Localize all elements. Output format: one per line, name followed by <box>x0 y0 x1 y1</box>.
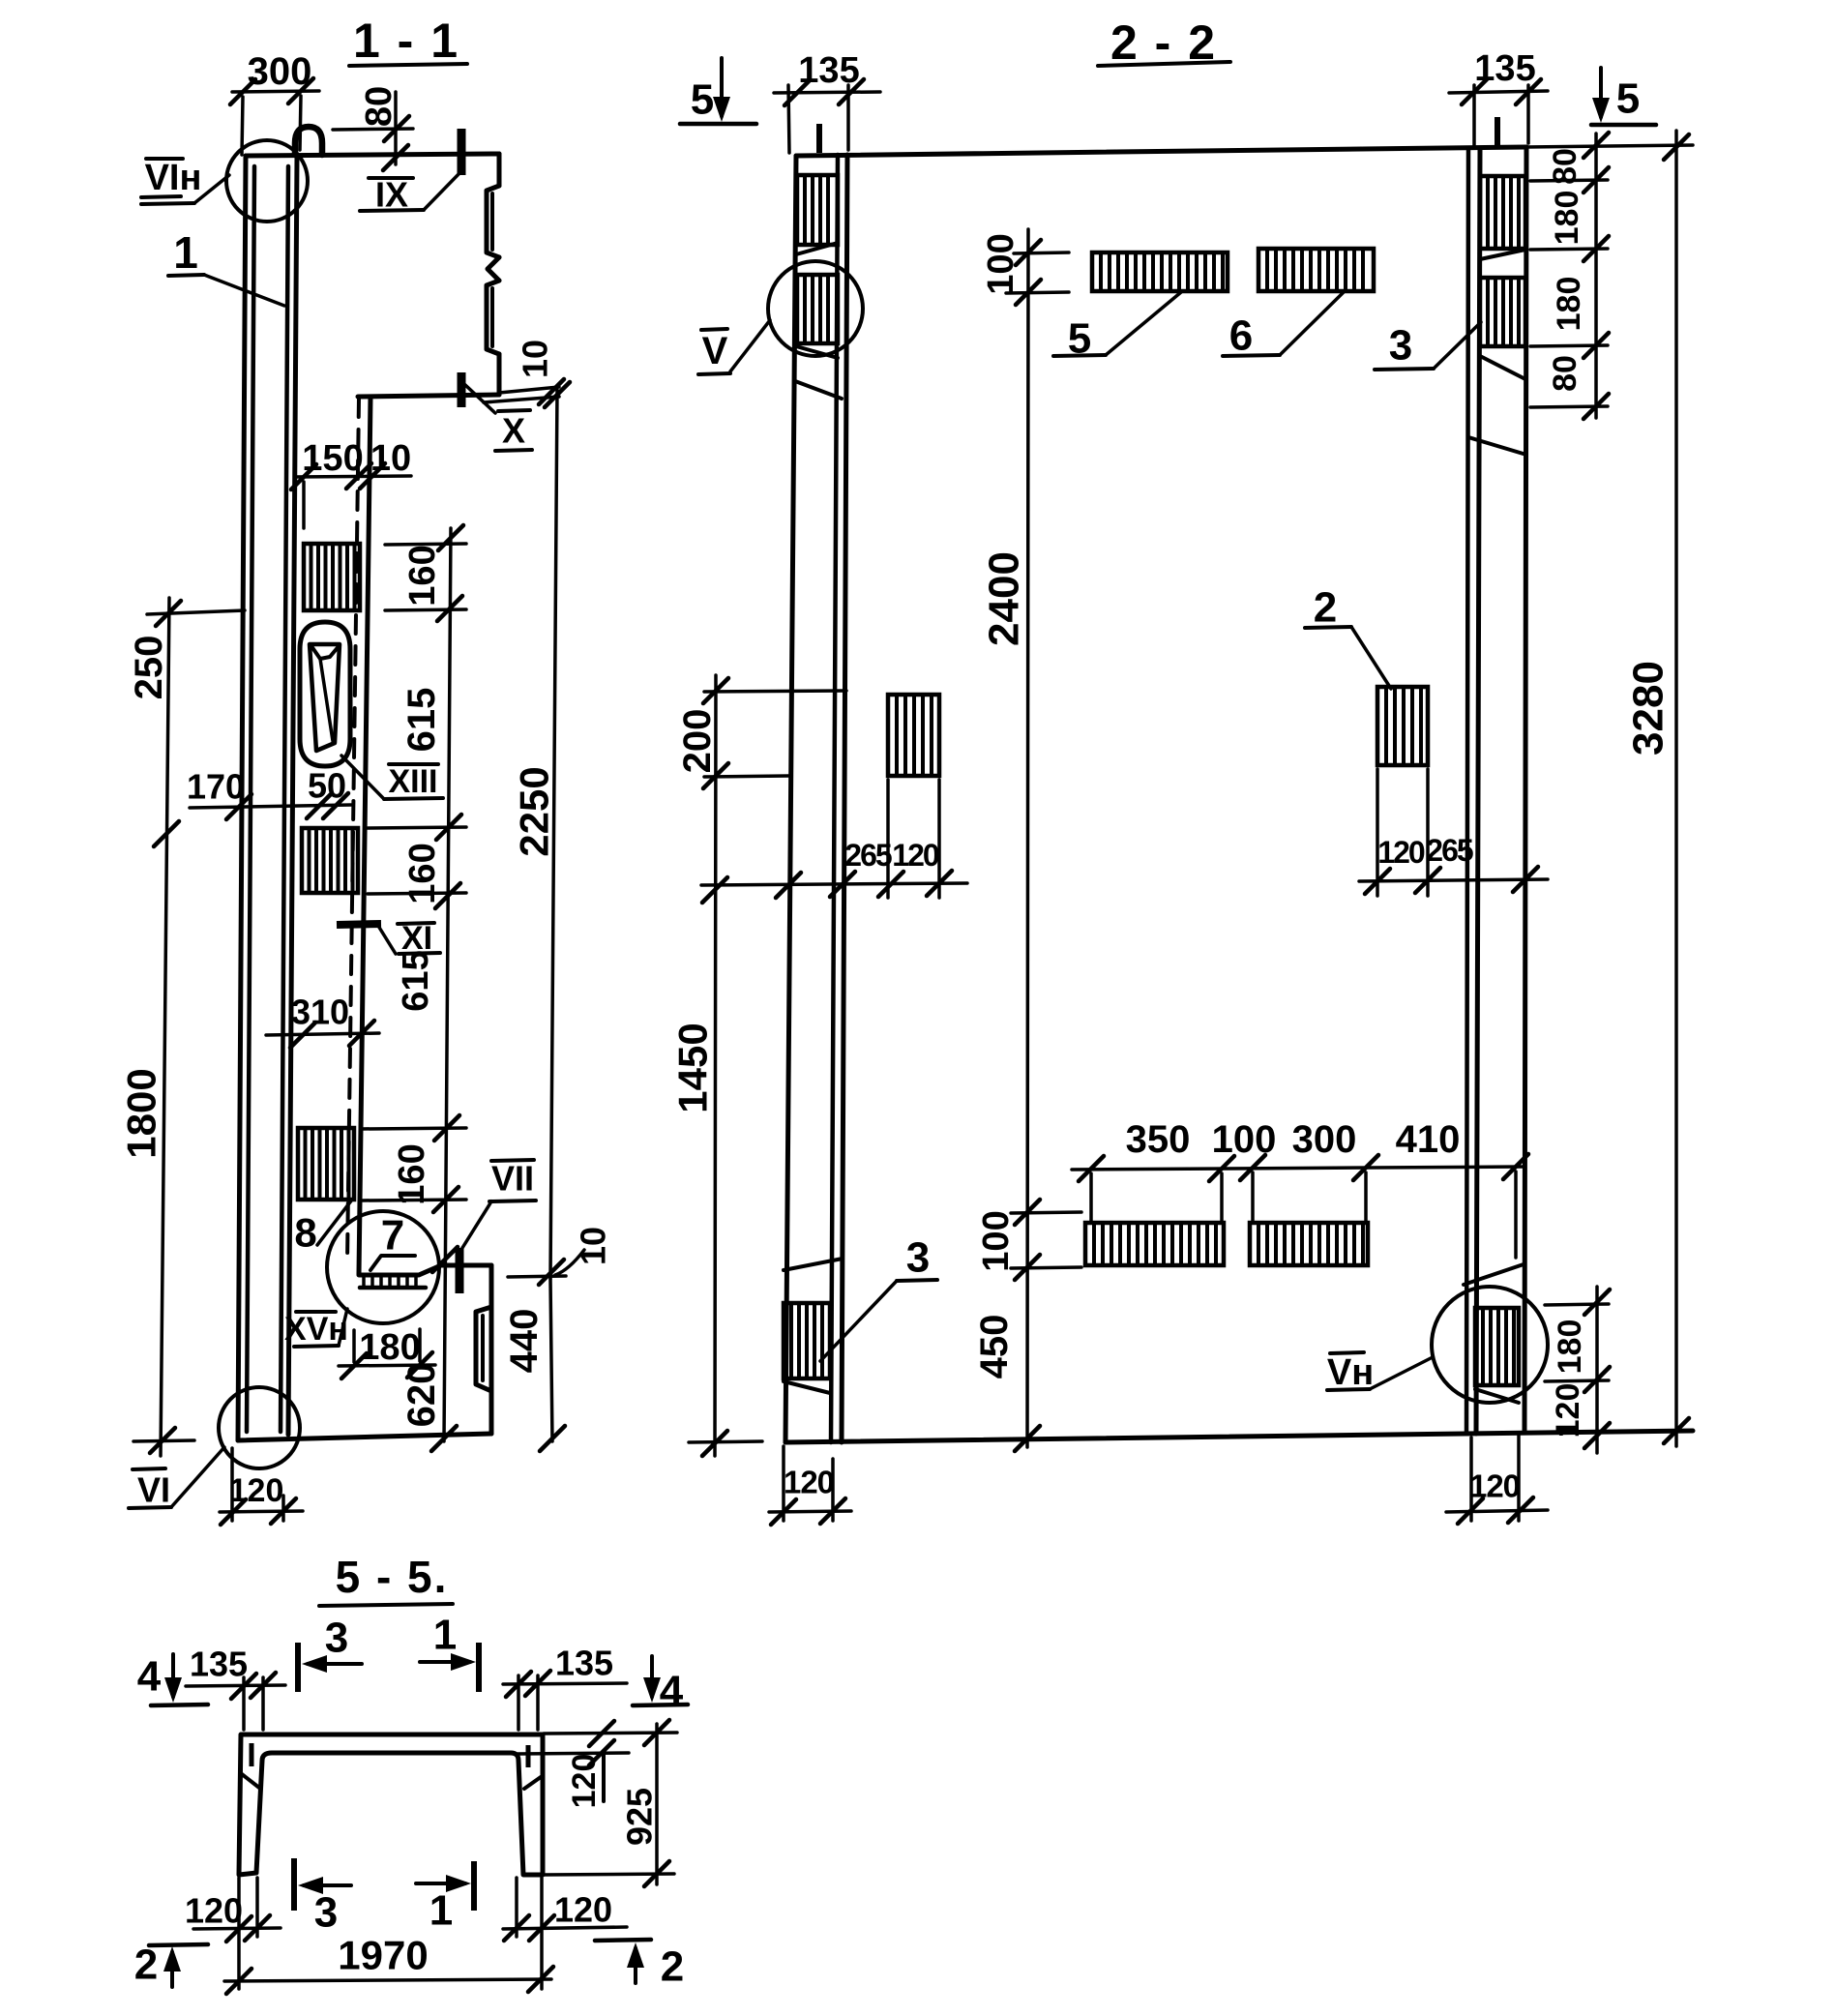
svg-text:120: 120 <box>784 1465 834 1500</box>
svg-text:3: 3 <box>1389 322 1412 370</box>
svg-text:180: 180 <box>1549 191 1585 246</box>
svg-text:X: X <box>502 411 525 451</box>
svg-text:VII: VII <box>491 1159 534 1199</box>
svg-text:120: 120 <box>185 1891 243 1931</box>
svg-text:3280: 3280 <box>1625 661 1672 756</box>
svg-text:200: 200 <box>676 709 719 774</box>
svg-text:10: 10 <box>574 1227 613 1265</box>
svg-text:1 - 1: 1 - 1 <box>353 14 459 68</box>
svg-text:VIн: VIн <box>145 158 202 198</box>
svg-text:7: 7 <box>381 1212 404 1260</box>
svg-text:4: 4 <box>137 1653 162 1701</box>
svg-text:615: 615 <box>396 950 436 1011</box>
svg-text:3: 3 <box>314 1889 338 1937</box>
svg-text:160: 160 <box>392 1143 432 1204</box>
svg-text:80: 80 <box>359 86 400 127</box>
svg-text:120: 120 <box>566 1754 603 1809</box>
svg-text:300: 300 <box>1292 1118 1357 1161</box>
svg-text:180: 180 <box>1552 1319 1588 1375</box>
svg-text:VI: VI <box>137 1470 170 1510</box>
svg-text:V: V <box>702 330 728 372</box>
svg-text:450: 450 <box>973 1315 1016 1379</box>
svg-text:615: 615 <box>400 688 443 753</box>
svg-text:XIII: XIII <box>388 763 437 800</box>
svg-text:4: 4 <box>660 1668 684 1715</box>
svg-text:1: 1 <box>173 227 198 278</box>
svg-text:620: 620 <box>400 1363 443 1428</box>
svg-text:3: 3 <box>325 1615 348 1662</box>
svg-text:150: 150 <box>302 438 363 479</box>
svg-text:180: 180 <box>359 1327 420 1368</box>
svg-text:10: 10 <box>516 340 555 378</box>
svg-text:1: 1 <box>429 1887 453 1935</box>
svg-text:120: 120 <box>1469 1468 1520 1504</box>
svg-text:2: 2 <box>134 1942 158 1989</box>
svg-text:135: 135 <box>190 1645 248 1684</box>
svg-text:1970: 1970 <box>338 1933 428 1978</box>
svg-text:2: 2 <box>1314 584 1337 632</box>
svg-text:120: 120 <box>554 1890 612 1930</box>
svg-text:1: 1 <box>433 1612 457 1659</box>
svg-text:6: 6 <box>1229 312 1253 360</box>
svg-text:120: 120 <box>1377 835 1425 870</box>
svg-text:2: 2 <box>661 1943 684 1991</box>
svg-text:5: 5 <box>691 76 714 124</box>
svg-text:3: 3 <box>906 1234 930 1282</box>
svg-text:80: 80 <box>1547 355 1583 392</box>
svg-text:160: 160 <box>402 545 443 606</box>
svg-text:5: 5 <box>1616 75 1640 123</box>
svg-text:1450: 1450 <box>670 1023 716 1112</box>
svg-text:265: 265 <box>844 838 892 873</box>
svg-text:120: 120 <box>892 838 939 873</box>
svg-text:265: 265 <box>1426 833 1473 868</box>
svg-text:180: 180 <box>1551 277 1587 332</box>
svg-text:310: 310 <box>291 993 349 1032</box>
svg-text:250: 250 <box>128 636 170 700</box>
svg-text:135: 135 <box>555 1644 613 1683</box>
svg-text:300: 300 <box>248 50 312 93</box>
svg-text:2250: 2250 <box>512 766 557 856</box>
svg-text:2400: 2400 <box>981 551 1028 646</box>
svg-text:100: 100 <box>976 1210 1017 1271</box>
svg-text:170: 170 <box>187 767 245 807</box>
svg-text:Vн: Vн <box>1327 1352 1374 1393</box>
svg-text:350: 350 <box>1126 1118 1191 1161</box>
svg-text:925: 925 <box>620 1788 660 1846</box>
svg-text:120: 120 <box>1550 1383 1586 1438</box>
svg-text:440: 440 <box>503 1309 546 1374</box>
svg-text:410: 410 <box>1396 1118 1461 1161</box>
svg-text:1800: 1800 <box>119 1068 164 1158</box>
svg-text:120: 120 <box>229 1472 284 1509</box>
svg-text:8: 8 <box>294 1210 316 1256</box>
svg-text:5 - 5.: 5 - 5. <box>336 1552 449 1602</box>
